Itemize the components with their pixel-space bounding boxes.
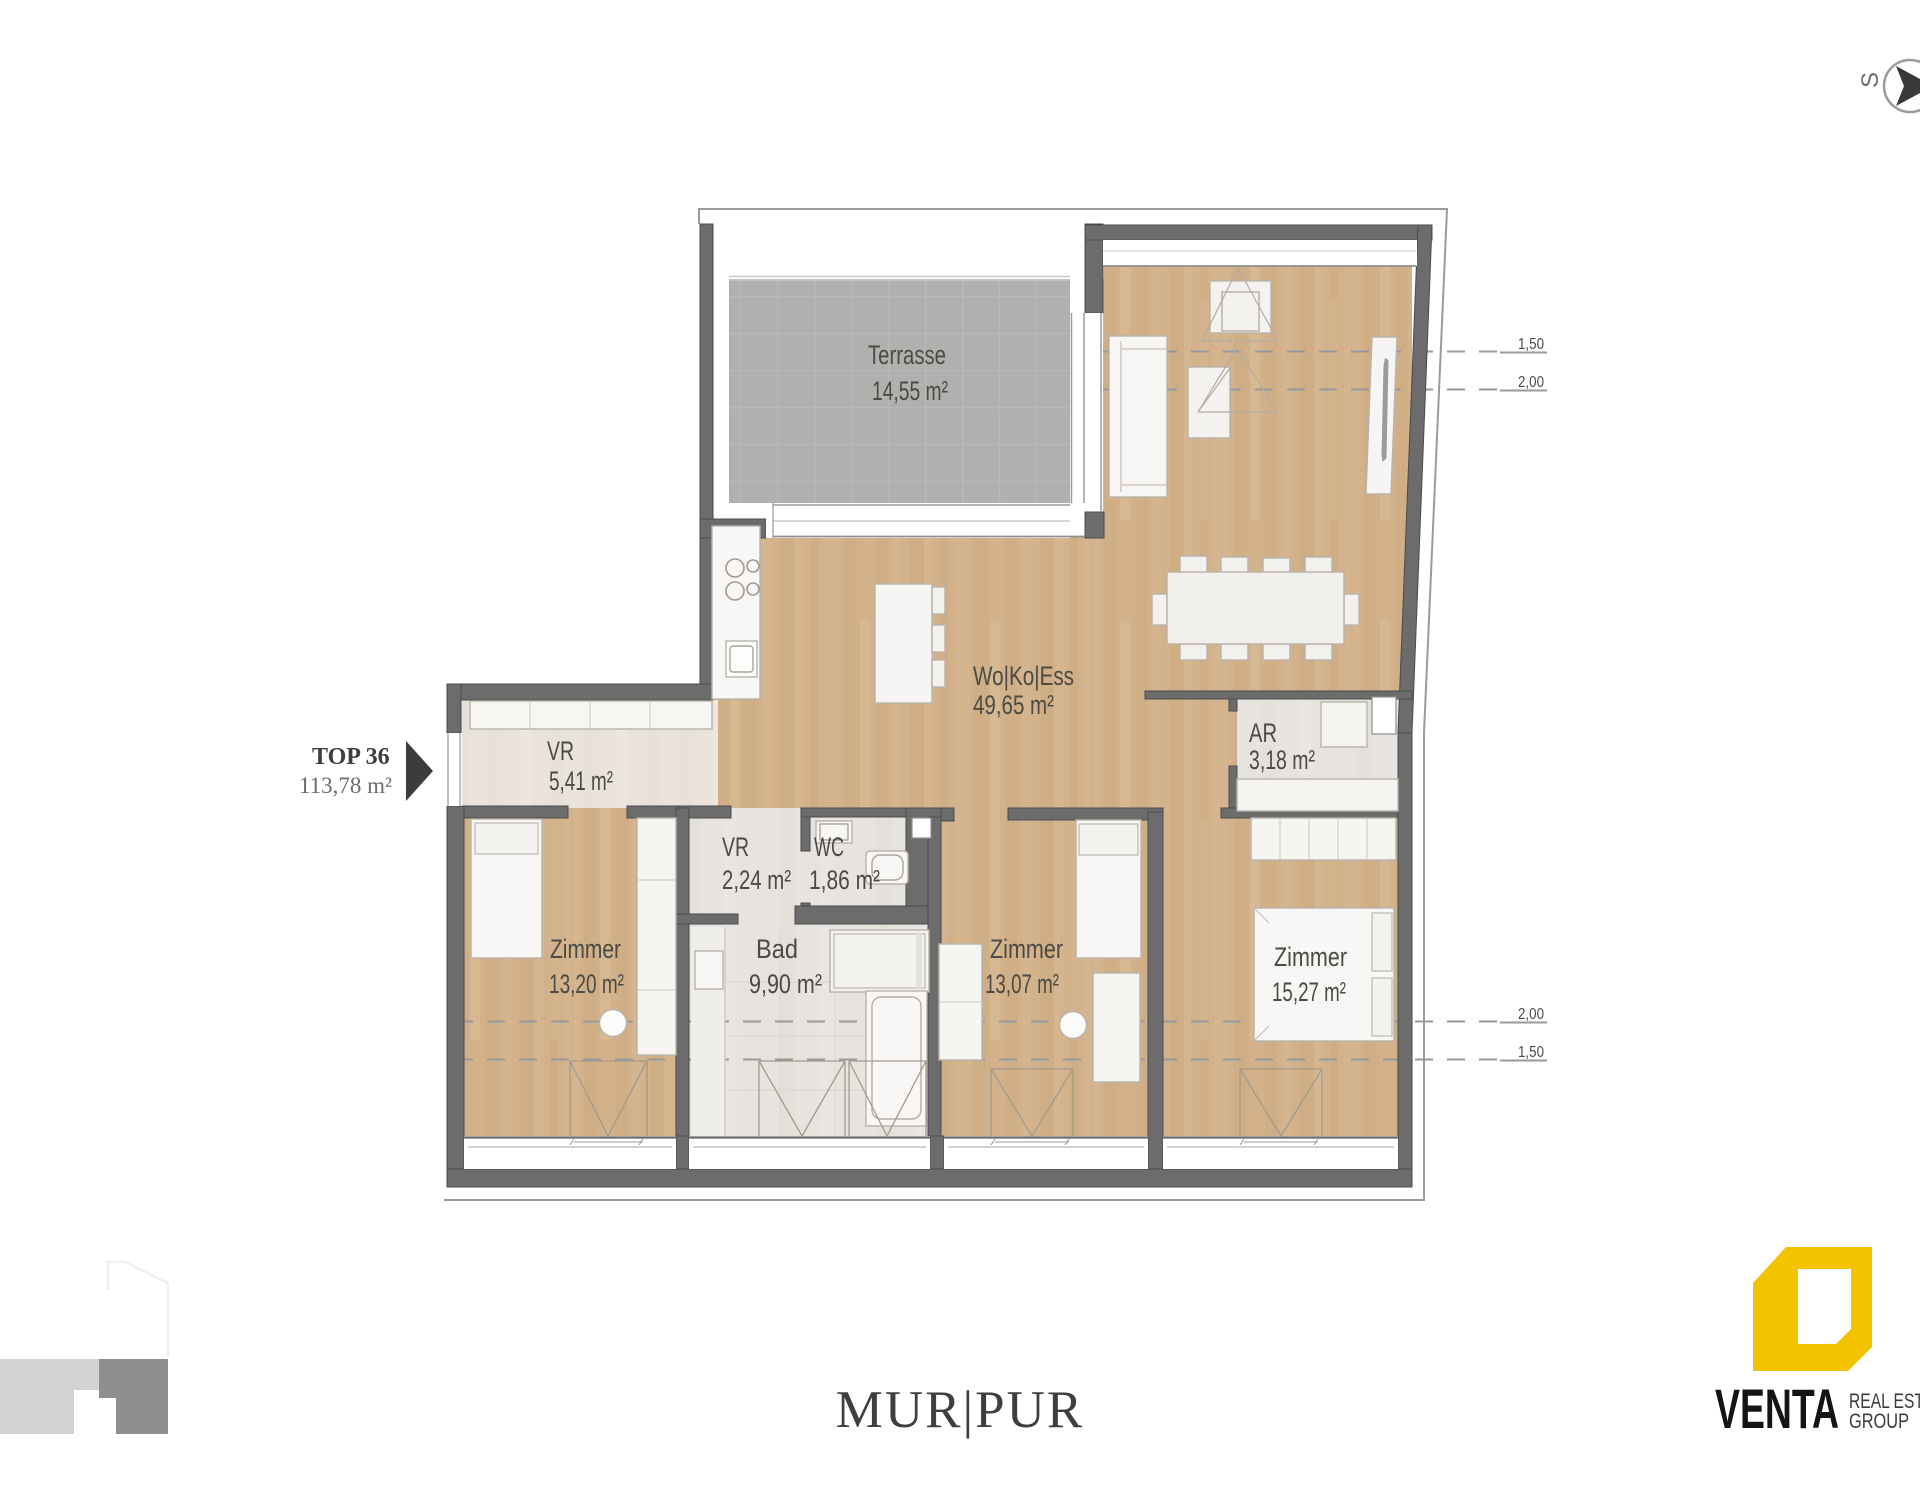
svg-text:VENTA: VENTA — [1715, 1377, 1839, 1440]
svg-text:Bad: Bad — [756, 934, 798, 964]
svg-text:9,90 m²: 9,90 m² — [749, 969, 822, 999]
svg-text:VR: VR — [547, 736, 574, 766]
svg-text:2,00: 2,00 — [1518, 374, 1544, 391]
svg-text:MUR|PUR: MUR|PUR — [836, 1381, 1084, 1439]
svg-text:Terrasse: Terrasse — [868, 340, 946, 370]
svg-text:15,27 m²: 15,27 m² — [1272, 977, 1346, 1007]
svg-text:Zimmer: Zimmer — [990, 934, 1063, 964]
svg-text:Wo|Ko|Ess: Wo|Ko|Ess — [973, 661, 1074, 691]
svg-text:AR: AR — [1249, 718, 1277, 748]
svg-text:Zimmer: Zimmer — [550, 934, 621, 964]
svg-text:5,41 m²: 5,41 m² — [549, 766, 613, 796]
svg-text:TOP 36: TOP 36 — [312, 744, 390, 770]
svg-text:13,20 m²: 13,20 m² — [549, 969, 624, 999]
svg-text:VR: VR — [722, 832, 749, 862]
svg-text:1,50: 1,50 — [1518, 336, 1544, 353]
svg-text:S: S — [1857, 72, 1884, 88]
svg-text:3,18 m²: 3,18 m² — [1249, 745, 1315, 775]
svg-text:2,00: 2,00 — [1518, 1006, 1544, 1023]
svg-text:1,50: 1,50 — [1518, 1044, 1544, 1061]
svg-text:113,78 m²: 113,78 m² — [299, 773, 392, 798]
svg-text:13,07 m²: 13,07 m² — [985, 969, 1059, 999]
svg-text:1,86 m²: 1,86 m² — [809, 865, 880, 895]
svg-text:WC: WC — [814, 832, 844, 862]
svg-text:Zimmer: Zimmer — [1274, 942, 1347, 972]
svg-text:GROUP: GROUP — [1849, 1410, 1909, 1433]
svg-text:49,65 m²: 49,65 m² — [973, 690, 1054, 720]
svg-text:14,55 m²: 14,55 m² — [872, 376, 948, 406]
svg-text:2,24 m²: 2,24 m² — [722, 865, 791, 895]
